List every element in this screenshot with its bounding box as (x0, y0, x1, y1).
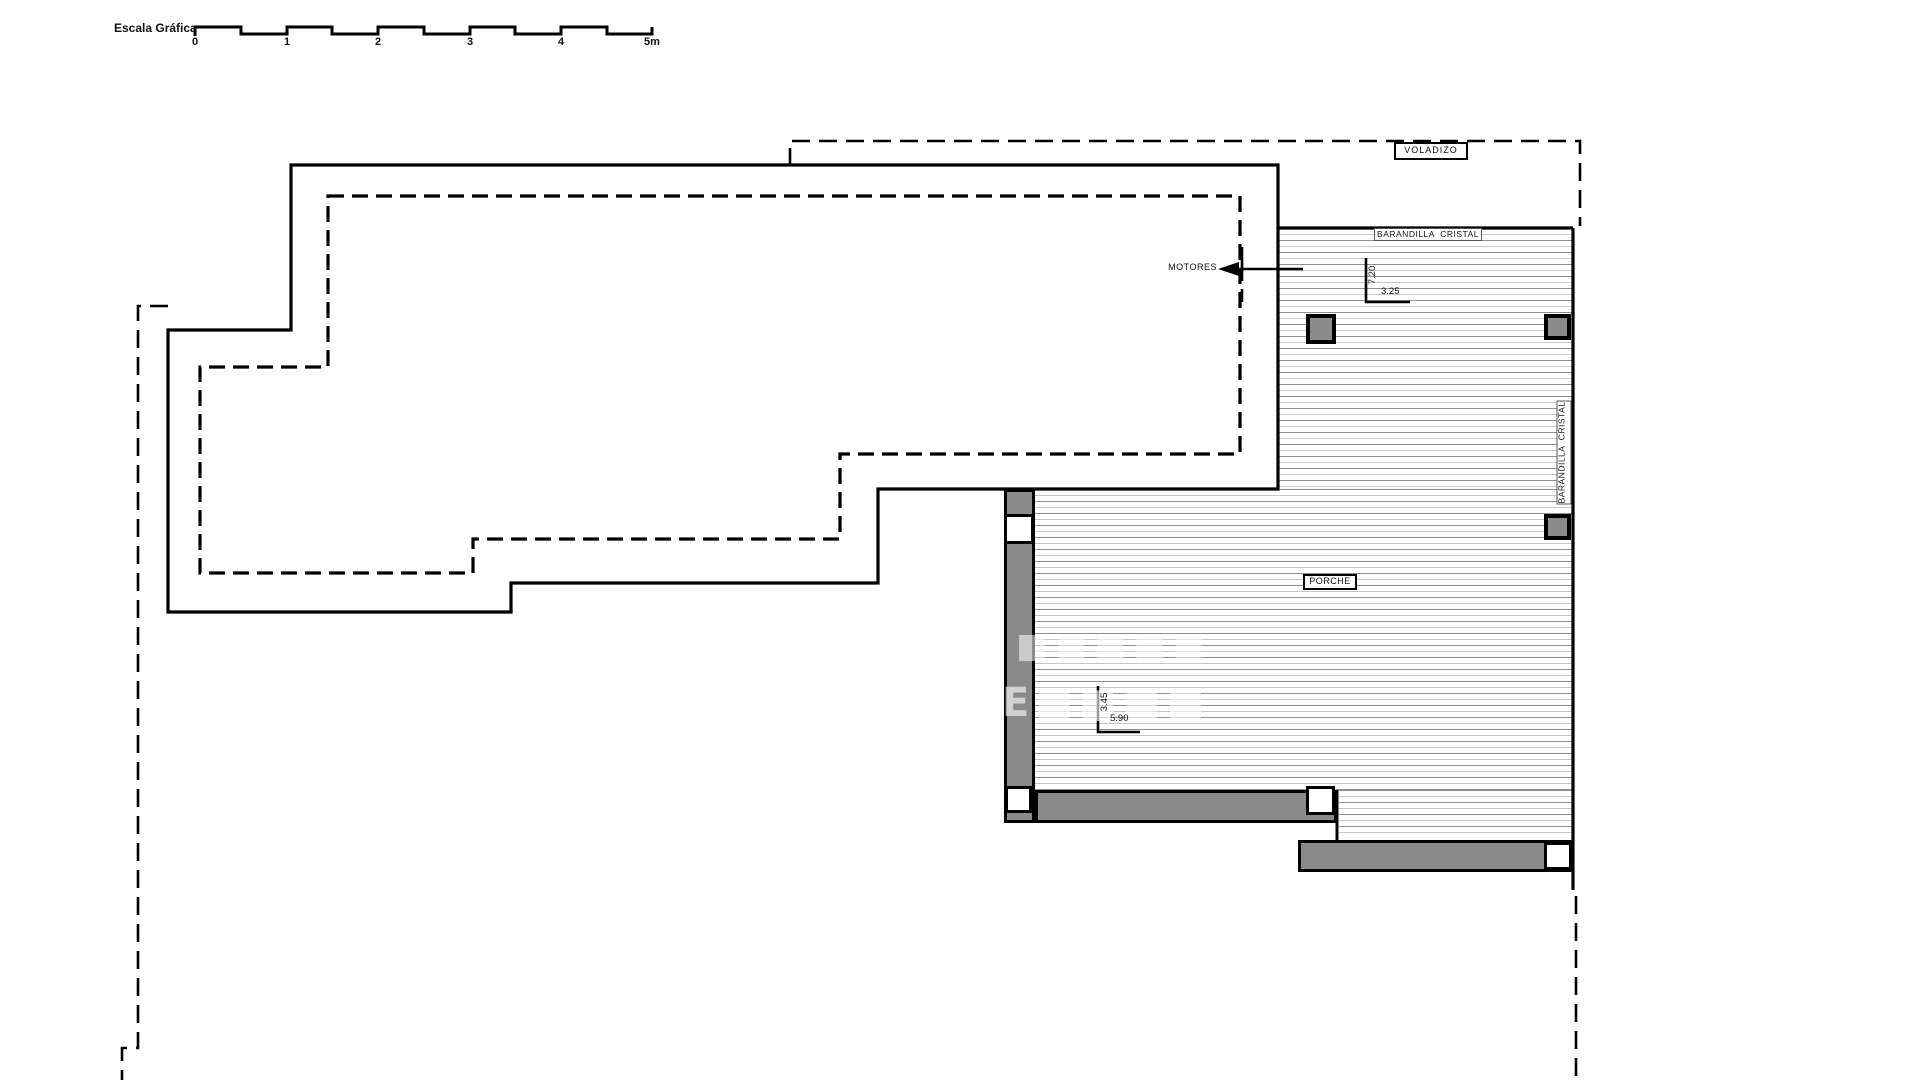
plan-lines-layer (0, 0, 1920, 1080)
wall-lower (1298, 840, 1573, 872)
pillar-dark-1 (1306, 314, 1336, 344)
pillar-white-1 (1004, 514, 1034, 544)
scale-tick-0: 0 (192, 36, 198, 48)
scale-bar-title: Escala Gráfica (114, 22, 197, 35)
deck-region-lower (1339, 790, 1573, 837)
floor-plan-canvas: ■■■■■ E■■■■ Escala Gráfica 0 1 2 3 4 5m … (0, 0, 1920, 1080)
barandilla-cristal-top-label: BARANDILLA CRISTAL (1374, 228, 1482, 241)
pillar-white-2 (1005, 786, 1032, 813)
scale-tick-1: 1 (284, 36, 290, 48)
motores-label: MOTORES (1120, 263, 1217, 273)
pillar-dark-3 (1544, 514, 1571, 540)
barandilla-cristal-right-label: BARANDILLA CRISTAL (1557, 401, 1572, 505)
motores-arrow-icon (1218, 262, 1239, 276)
scale-tick-5: 5m (644, 36, 660, 48)
voladizo-label: VOLADIZO (1394, 142, 1468, 160)
scale-bar-zigzag (195, 27, 652, 36)
scale-tick-2: 2 (375, 36, 381, 48)
deck-region-upper (1278, 228, 1573, 489)
dimension-3-25: 3.25 (1381, 287, 1400, 297)
wall-bottom (1035, 790, 1337, 823)
boundary-dashed-left (122, 306, 168, 1080)
scale-tick-3: 3 (467, 36, 473, 48)
dimension-7-20: 7.20 (1368, 253, 1380, 297)
pillar-dark-2 (1544, 314, 1571, 340)
dimension-5-90: 5.90 (1110, 714, 1129, 724)
porche-label: PORCHE (1303, 574, 1357, 590)
watermark-line1: ■■■■■ (1016, 626, 1212, 666)
scale-tick-4: 4 (558, 36, 564, 48)
pillar-white-3 (1306, 786, 1335, 815)
pillar-white-4 (1544, 842, 1572, 870)
